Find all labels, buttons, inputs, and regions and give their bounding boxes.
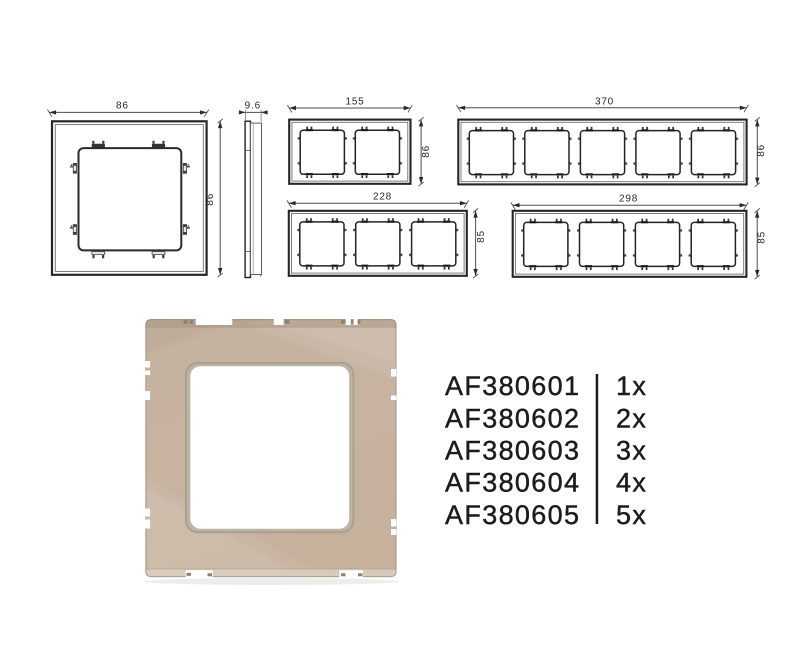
svg-text:AF380605: AF380605	[445, 500, 580, 530]
svg-text:370: 370	[595, 96, 614, 107]
svg-text:AF380604: AF380604	[445, 468, 580, 498]
svg-text:9.6: 9.6	[245, 101, 261, 112]
svg-text:5x: 5x	[616, 500, 647, 530]
svg-text:85: 85	[476, 230, 487, 243]
svg-text:298: 298	[619, 194, 638, 205]
svg-text:86: 86	[421, 145, 432, 158]
svg-text:3x: 3x	[616, 436, 647, 466]
svg-text:AF380603: AF380603	[445, 436, 580, 466]
svg-text:86: 86	[116, 101, 129, 112]
svg-text:AF380602: AF380602	[445, 403, 580, 433]
svg-text:155: 155	[345, 97, 364, 108]
svg-text:228: 228	[373, 192, 392, 203]
svg-text:4x: 4x	[616, 468, 647, 498]
svg-text:86: 86	[756, 144, 767, 157]
svg-text:1x: 1x	[616, 371, 647, 401]
svg-text:2x: 2x	[616, 403, 647, 433]
svg-text:85: 85	[756, 231, 767, 244]
svg-text:AF380601: AF380601	[445, 371, 580, 401]
svg-text:86: 86	[205, 193, 216, 206]
